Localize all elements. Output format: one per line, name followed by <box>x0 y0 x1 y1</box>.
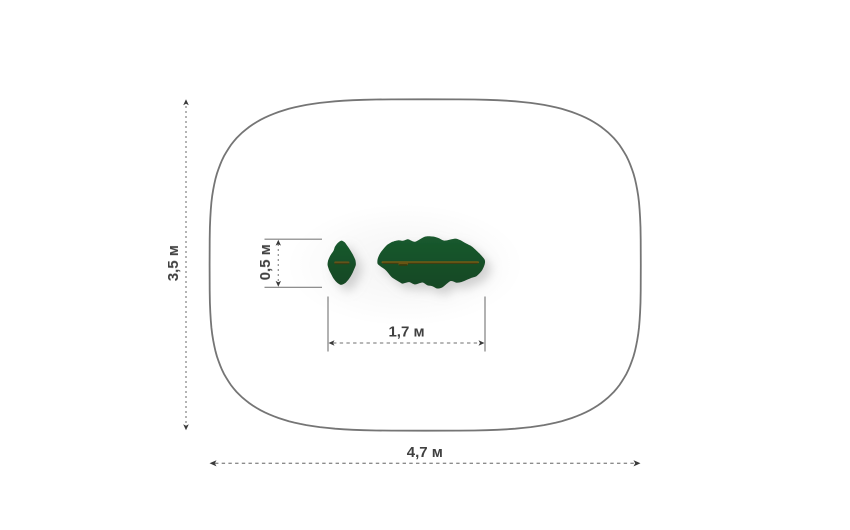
svg-text:3,5 м: 3,5 м <box>165 245 182 281</box>
svg-text:4,7 м: 4,7 м <box>407 444 443 461</box>
svg-text:1,7 м: 1,7 м <box>388 323 424 340</box>
svg-text:0,5 м: 0,5 м <box>257 244 274 280</box>
